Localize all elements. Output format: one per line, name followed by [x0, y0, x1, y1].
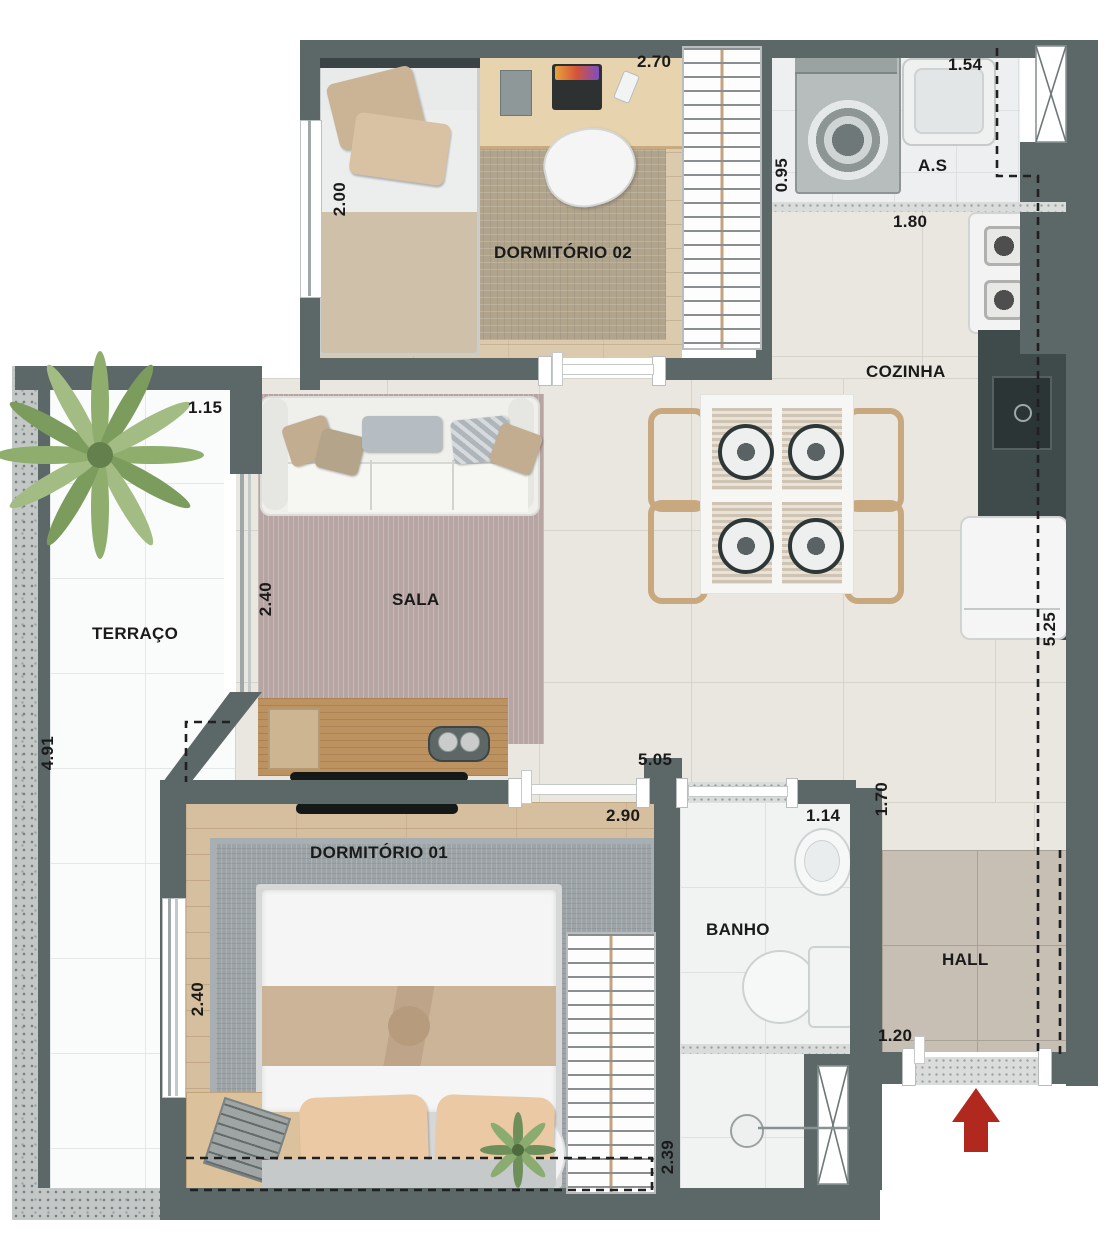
dim-cozinha-length: 5.25 [1040, 612, 1060, 646]
dim-sala-span: 5.05 [638, 750, 672, 770]
wall-segment [38, 366, 50, 1188]
dorm01-window-glass [168, 898, 171, 1096]
sofa-seat [288, 462, 528, 512]
cushion-divider [452, 460, 454, 510]
tray-knob [438, 732, 458, 752]
hall-upper-floor [882, 802, 1066, 852]
shower-glass [680, 1044, 850, 1054]
room-label-as: A.S [918, 156, 947, 176]
as-kitchen-edge [772, 202, 1066, 212]
door-jamb [1038, 1048, 1052, 1086]
room-label-cozinha: COZINHA [866, 362, 946, 382]
entry-threshold [912, 1054, 1040, 1088]
room-label-terraco: TERRAÇO [92, 624, 178, 644]
entrance-arrow-shaft [964, 1120, 988, 1152]
dim-as-width: 1.54 [948, 55, 982, 75]
tablet-icon [500, 70, 532, 116]
wall-segment [788, 780, 856, 804]
floor-plan: DORMITÓRIO 02 2.70 2.00 A.S 1.54 0.95 CO… [0, 0, 1117, 1239]
wall-segment [300, 40, 320, 120]
dorm02-door-leaf [552, 352, 563, 386]
dim-dorm01-depth: 2.40 [188, 982, 208, 1016]
throw-pillow [362, 416, 442, 452]
dim-terraco-width: 1.15 [188, 398, 222, 418]
door-jamb [676, 778, 688, 808]
fridge-door-line [964, 608, 1060, 610]
dim-as-depth: 0.95 [772, 158, 792, 192]
laptop-screen [555, 66, 599, 80]
room-label-sala: SALA [392, 590, 439, 610]
wall-bottom [160, 1188, 880, 1220]
room-label-dormitorio02: DORMITÓRIO 02 [494, 243, 632, 263]
cushion-divider [370, 460, 372, 510]
terrace-door-sill [224, 474, 236, 696]
wall-right [1066, 40, 1098, 1086]
plate [718, 424, 774, 480]
terrace-glass-door [248, 474, 251, 696]
burner [984, 280, 1024, 320]
faucet-icon [1014, 404, 1032, 422]
wall-segment [850, 788, 882, 1052]
toilet-tank [808, 946, 854, 1028]
wall-segment [1020, 142, 1066, 354]
tv [296, 803, 458, 814]
dorm02-window-glass [308, 120, 311, 296]
pillow [348, 112, 452, 187]
dim-sala-depth: 2.40 [256, 582, 276, 616]
plate [788, 518, 844, 574]
wardrobe-dorm01 [566, 932, 656, 1194]
dim-terraco-depth: 4.91 [38, 736, 58, 770]
entry-door-leaf [914, 1036, 925, 1064]
bed-base [262, 1160, 556, 1188]
dim-dorm02-width: 2.70 [637, 52, 671, 72]
shower-drain [730, 1114, 764, 1148]
wall-terrace-top [15, 366, 237, 390]
window-x-icon [1036, 46, 1066, 142]
room-label-banho: BANHO [706, 920, 770, 940]
dining-chair [648, 500, 708, 604]
wall-segment [160, 780, 516, 804]
sofa-arm [262, 398, 288, 510]
terrace-glass-door [240, 474, 244, 696]
dim-entry-width: 1.20 [878, 1026, 912, 1046]
dorm02-door [552, 364, 654, 375]
dorm01-door-leaf [521, 770, 532, 804]
dim-banho-depth: 2.39 [658, 1140, 678, 1174]
dining-chair [648, 408, 708, 512]
room-label-dormitorio01: DORMITÓRIO 01 [310, 843, 448, 863]
wall-segment [654, 804, 680, 1190]
wardrobe-dorm02 [682, 46, 762, 350]
dorm01-door [521, 784, 637, 795]
door-jamb [652, 356, 666, 386]
wall-segment [230, 366, 262, 474]
sink-basin [804, 840, 840, 882]
door-jamb [636, 778, 650, 808]
tank-basin [914, 68, 984, 134]
entrance-arrow-icon [952, 1088, 1000, 1122]
dorm02-window [300, 120, 322, 298]
door-jamb [538, 356, 552, 386]
room-label-hall: HALL [942, 950, 989, 970]
dorm01-window-glass [175, 898, 178, 1096]
burner [984, 226, 1024, 266]
toilet-bowl [742, 950, 818, 1024]
plate [788, 424, 844, 480]
banho-door [688, 786, 788, 797]
dim-banho-width: 1.14 [806, 806, 840, 826]
console-book [268, 708, 320, 770]
dorm01-window [162, 898, 186, 1098]
dim-hall-depth: 1.70 [872, 782, 892, 816]
dim-cozinha-width: 1.80 [893, 212, 927, 232]
wall-segment [300, 358, 548, 380]
door-jamb [508, 778, 522, 808]
dim-dorm01-width: 2.90 [606, 806, 640, 826]
terrace-outer-wall [12, 1188, 162, 1220]
wall-segment [654, 358, 772, 380]
plate [718, 518, 774, 574]
dim-dorm02-depth: 2.00 [330, 182, 350, 216]
tray-knob [460, 732, 480, 752]
throw-knot [388, 1006, 430, 1046]
